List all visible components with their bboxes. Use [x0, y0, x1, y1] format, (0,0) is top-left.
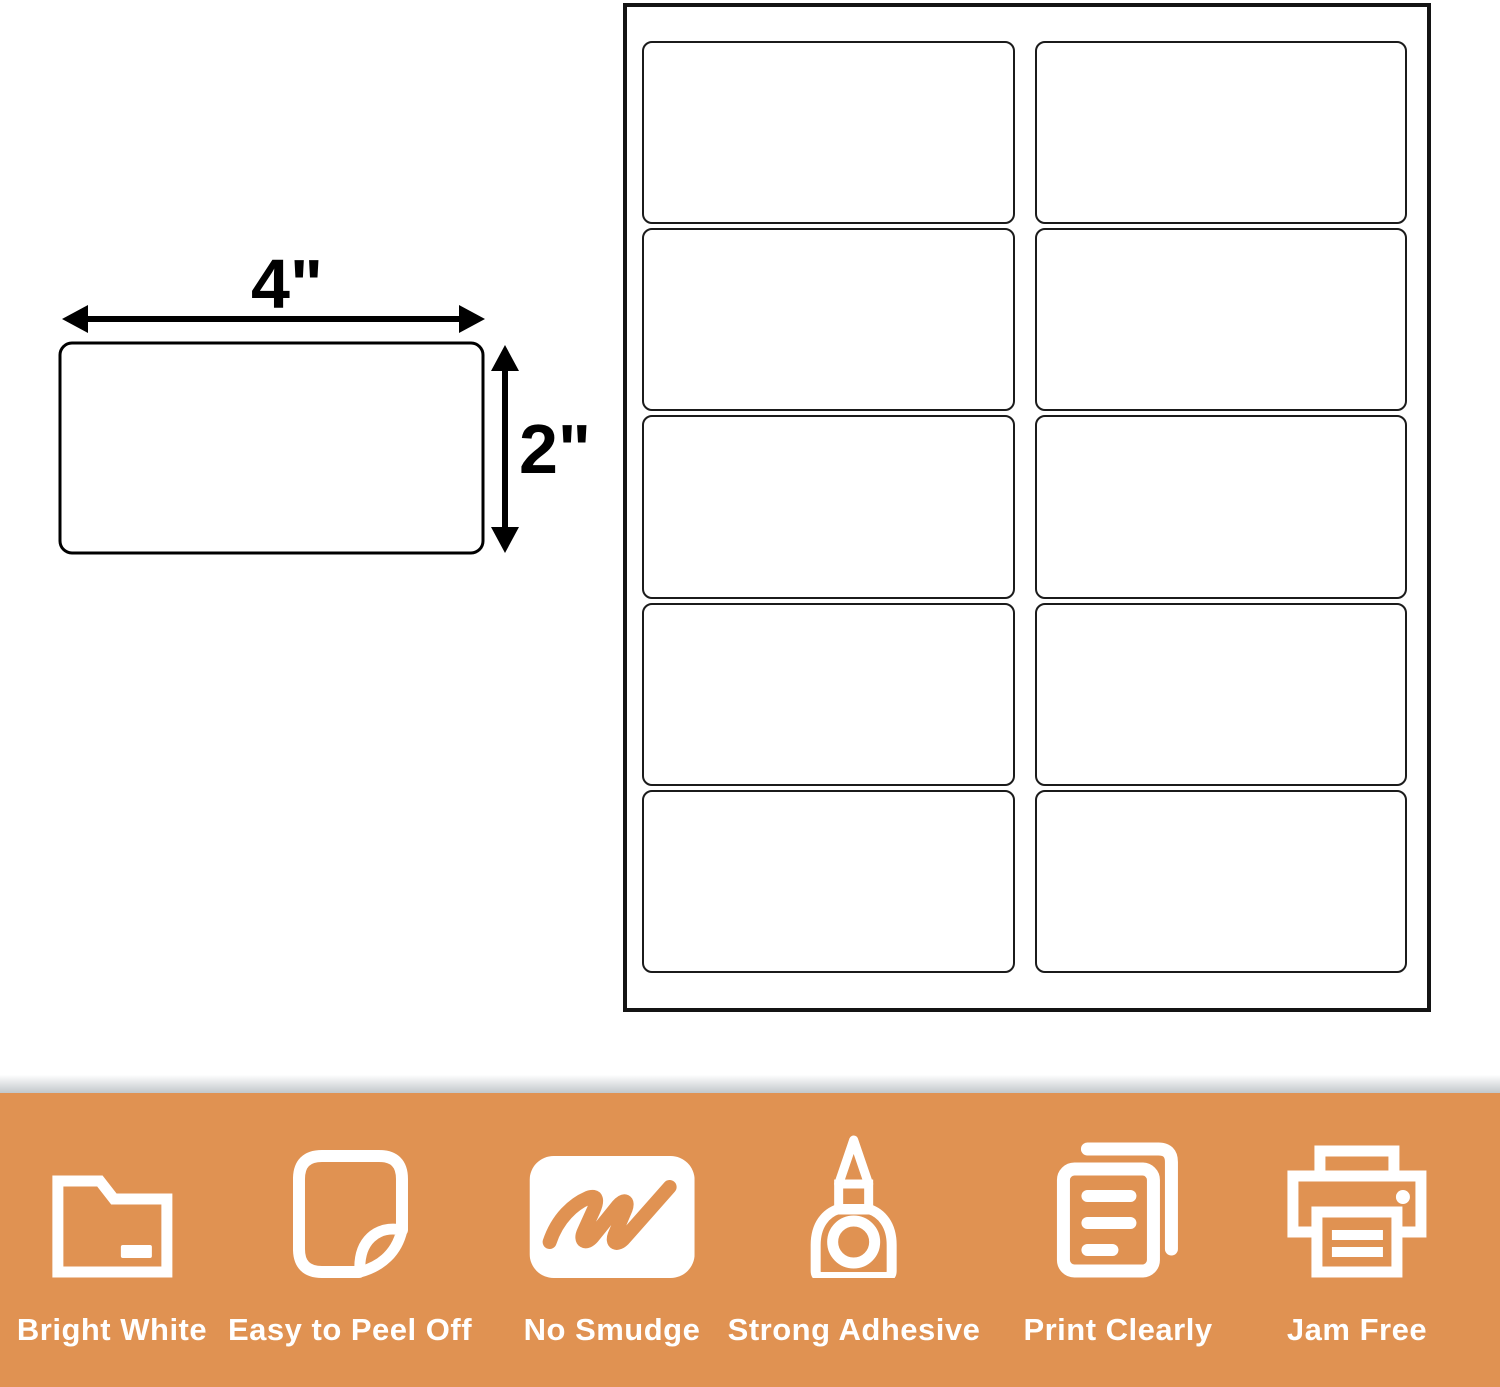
label-grid [642, 41, 1407, 973]
feature-label: Bright White [17, 1314, 207, 1345]
width-dimension-label: 4" [251, 245, 323, 323]
label-cell [642, 603, 1015, 786]
pages-icon [1056, 1141, 1181, 1278]
feature-label: Jam Free [1287, 1314, 1427, 1345]
label-dimension-diagram: 4" 2" [30, 240, 610, 570]
icon-wrap [808, 1128, 900, 1278]
feature-strong-adhesive: Strong Adhesive [728, 1128, 981, 1345]
height-dimension-label: 2" [519, 410, 591, 488]
feature-no-smudge: No Smudge [524, 1128, 701, 1345]
vertical-arrow [491, 345, 519, 553]
label-cell [642, 415, 1015, 598]
feature-label: Easy to Peel Off [228, 1314, 472, 1345]
divider-shadow [0, 1075, 1500, 1093]
icon-wrap [1287, 1128, 1427, 1278]
icon-wrap [529, 1128, 694, 1278]
peel-icon [293, 1150, 408, 1278]
label-cell [642, 228, 1015, 411]
feature-easy-peel: Easy to Peel Off [228, 1128, 472, 1345]
icon-wrap [52, 1128, 173, 1278]
feature-banner: Bright White Easy to Peel Off No Smudge [0, 1093, 1500, 1387]
feature-print-clearly: Print Clearly [1023, 1128, 1212, 1345]
label-cell [642, 790, 1015, 973]
single-label-outline [60, 343, 483, 553]
label-sheet [623, 3, 1431, 1012]
feature-bright-white: Bright White [17, 1128, 207, 1345]
scribble-icon [529, 1156, 694, 1278]
icon-wrap [293, 1128, 408, 1278]
label-cell [1035, 790, 1408, 973]
feature-label: Strong Adhesive [728, 1314, 981, 1345]
icon-wrap [1056, 1128, 1181, 1278]
feature-label: No Smudge [524, 1314, 701, 1345]
folder-icon [52, 1173, 173, 1278]
feature-label: Print Clearly [1023, 1314, 1212, 1345]
glue-icon [808, 1133, 900, 1278]
label-cell [1035, 603, 1408, 786]
label-cell [1035, 415, 1408, 598]
printer-icon [1287, 1145, 1427, 1278]
feature-jam-free: Jam Free [1287, 1128, 1427, 1345]
label-cell [642, 41, 1015, 224]
label-cell [1035, 41, 1408, 224]
label-cell [1035, 228, 1408, 411]
